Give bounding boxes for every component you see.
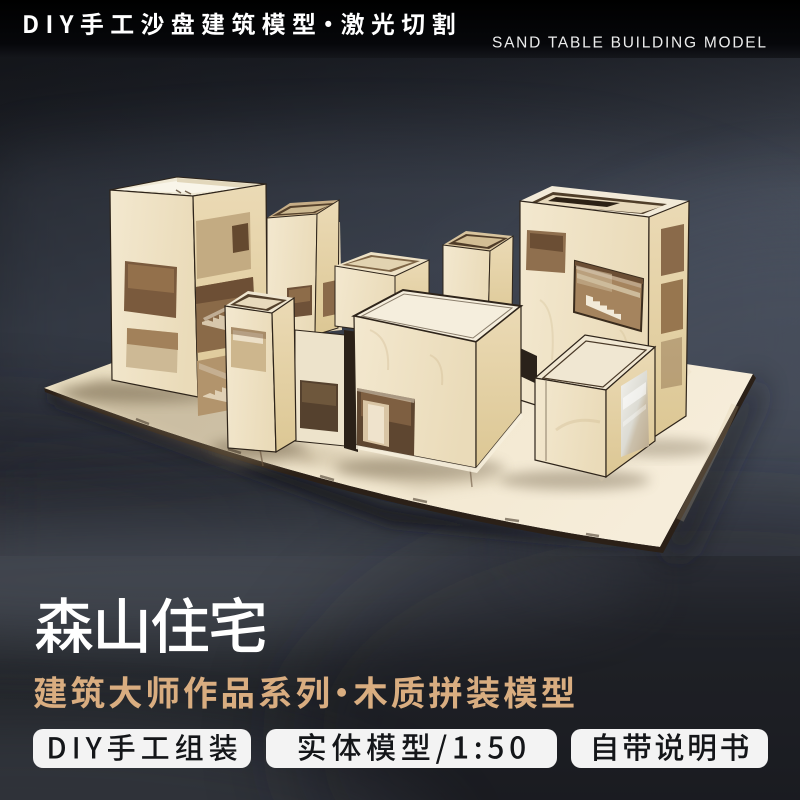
svg-text:SAND TABLE BUILDING MODEL: SAND TABLE BUILDING MODEL bbox=[492, 35, 768, 52]
